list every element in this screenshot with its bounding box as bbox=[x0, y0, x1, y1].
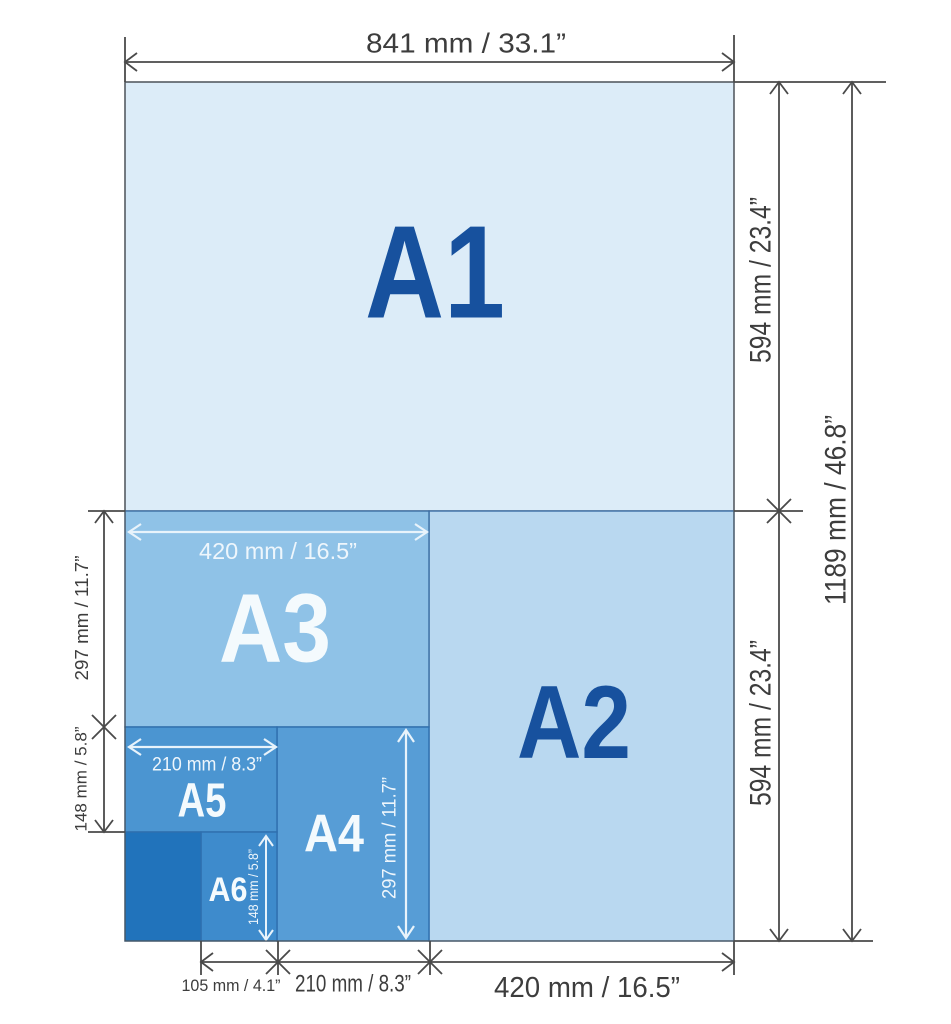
svg-text:1189 mm / 46.8”: 1189 mm / 46.8” bbox=[820, 415, 853, 605]
svg-text:A6: A6 bbox=[209, 871, 248, 909]
svg-text:105 mm / 4.1”: 105 mm / 4.1” bbox=[182, 977, 281, 995]
svg-text:A5: A5 bbox=[178, 775, 227, 828]
svg-text:A1: A1 bbox=[365, 199, 505, 346]
svg-text:297 mm / 11.7”: 297 mm / 11.7” bbox=[380, 777, 401, 899]
svg-text:210 mm / 8.3”: 210 mm / 8.3” bbox=[295, 971, 411, 998]
svg-text:594 mm / 23.4”: 594 mm / 23.4” bbox=[745, 197, 778, 363]
svg-text:420 mm / 16.5”: 420 mm / 16.5” bbox=[199, 538, 357, 564]
svg-text:297 mm / 11.7”: 297 mm / 11.7” bbox=[72, 555, 92, 680]
svg-text:148 mm / 5.8”: 148 mm / 5.8” bbox=[72, 726, 91, 831]
svg-text:594 mm / 23.4”: 594 mm / 23.4” bbox=[745, 640, 778, 806]
svg-text:210 mm / 8.3”: 210 mm / 8.3” bbox=[152, 755, 262, 776]
svg-text:A4: A4 bbox=[304, 805, 364, 864]
svg-text:A2: A2 bbox=[517, 665, 631, 781]
svg-text:841 mm / 33.1”: 841 mm / 33.1” bbox=[366, 28, 566, 59]
svg-text:148 mm / 5.8”: 148 mm / 5.8” bbox=[245, 849, 261, 925]
svg-text:420 mm / 16.5”: 420 mm / 16.5” bbox=[494, 972, 680, 1004]
svg-text:A3: A3 bbox=[219, 574, 331, 683]
